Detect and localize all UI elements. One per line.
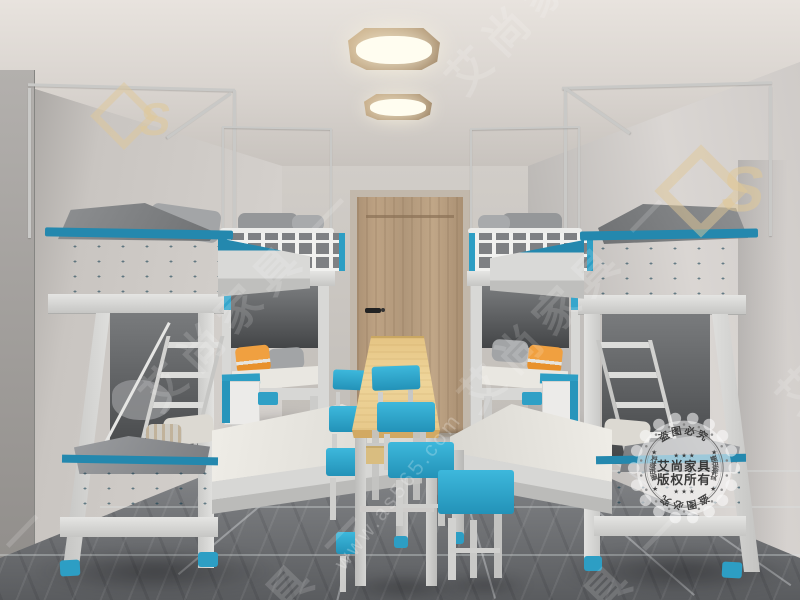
right-wall-shadow xyxy=(738,160,800,600)
floor-seam xyxy=(0,554,800,556)
stamp-star-row: ★ ★ ★ xyxy=(673,489,695,496)
stamp-subtitle: 版权所有 xyxy=(657,472,711,487)
stamp-star: ★ xyxy=(711,448,717,456)
copyright-stamp: 盗图必究 盗图必究 实物拍摄 实物拍摄 ★ ★ ★ ★ ★ ★ ★ 艾尚家具 版… xyxy=(626,410,742,526)
dormitory-render: 艾尚家具 一 艾尚家具 一 艾尚家具 一 艾尚家具 一 艾尚家具 一 艾尚家具 … xyxy=(0,0,800,600)
left-wall-corner xyxy=(0,70,35,600)
stamp-star: ★ xyxy=(651,448,657,456)
back-wall xyxy=(282,166,528,445)
